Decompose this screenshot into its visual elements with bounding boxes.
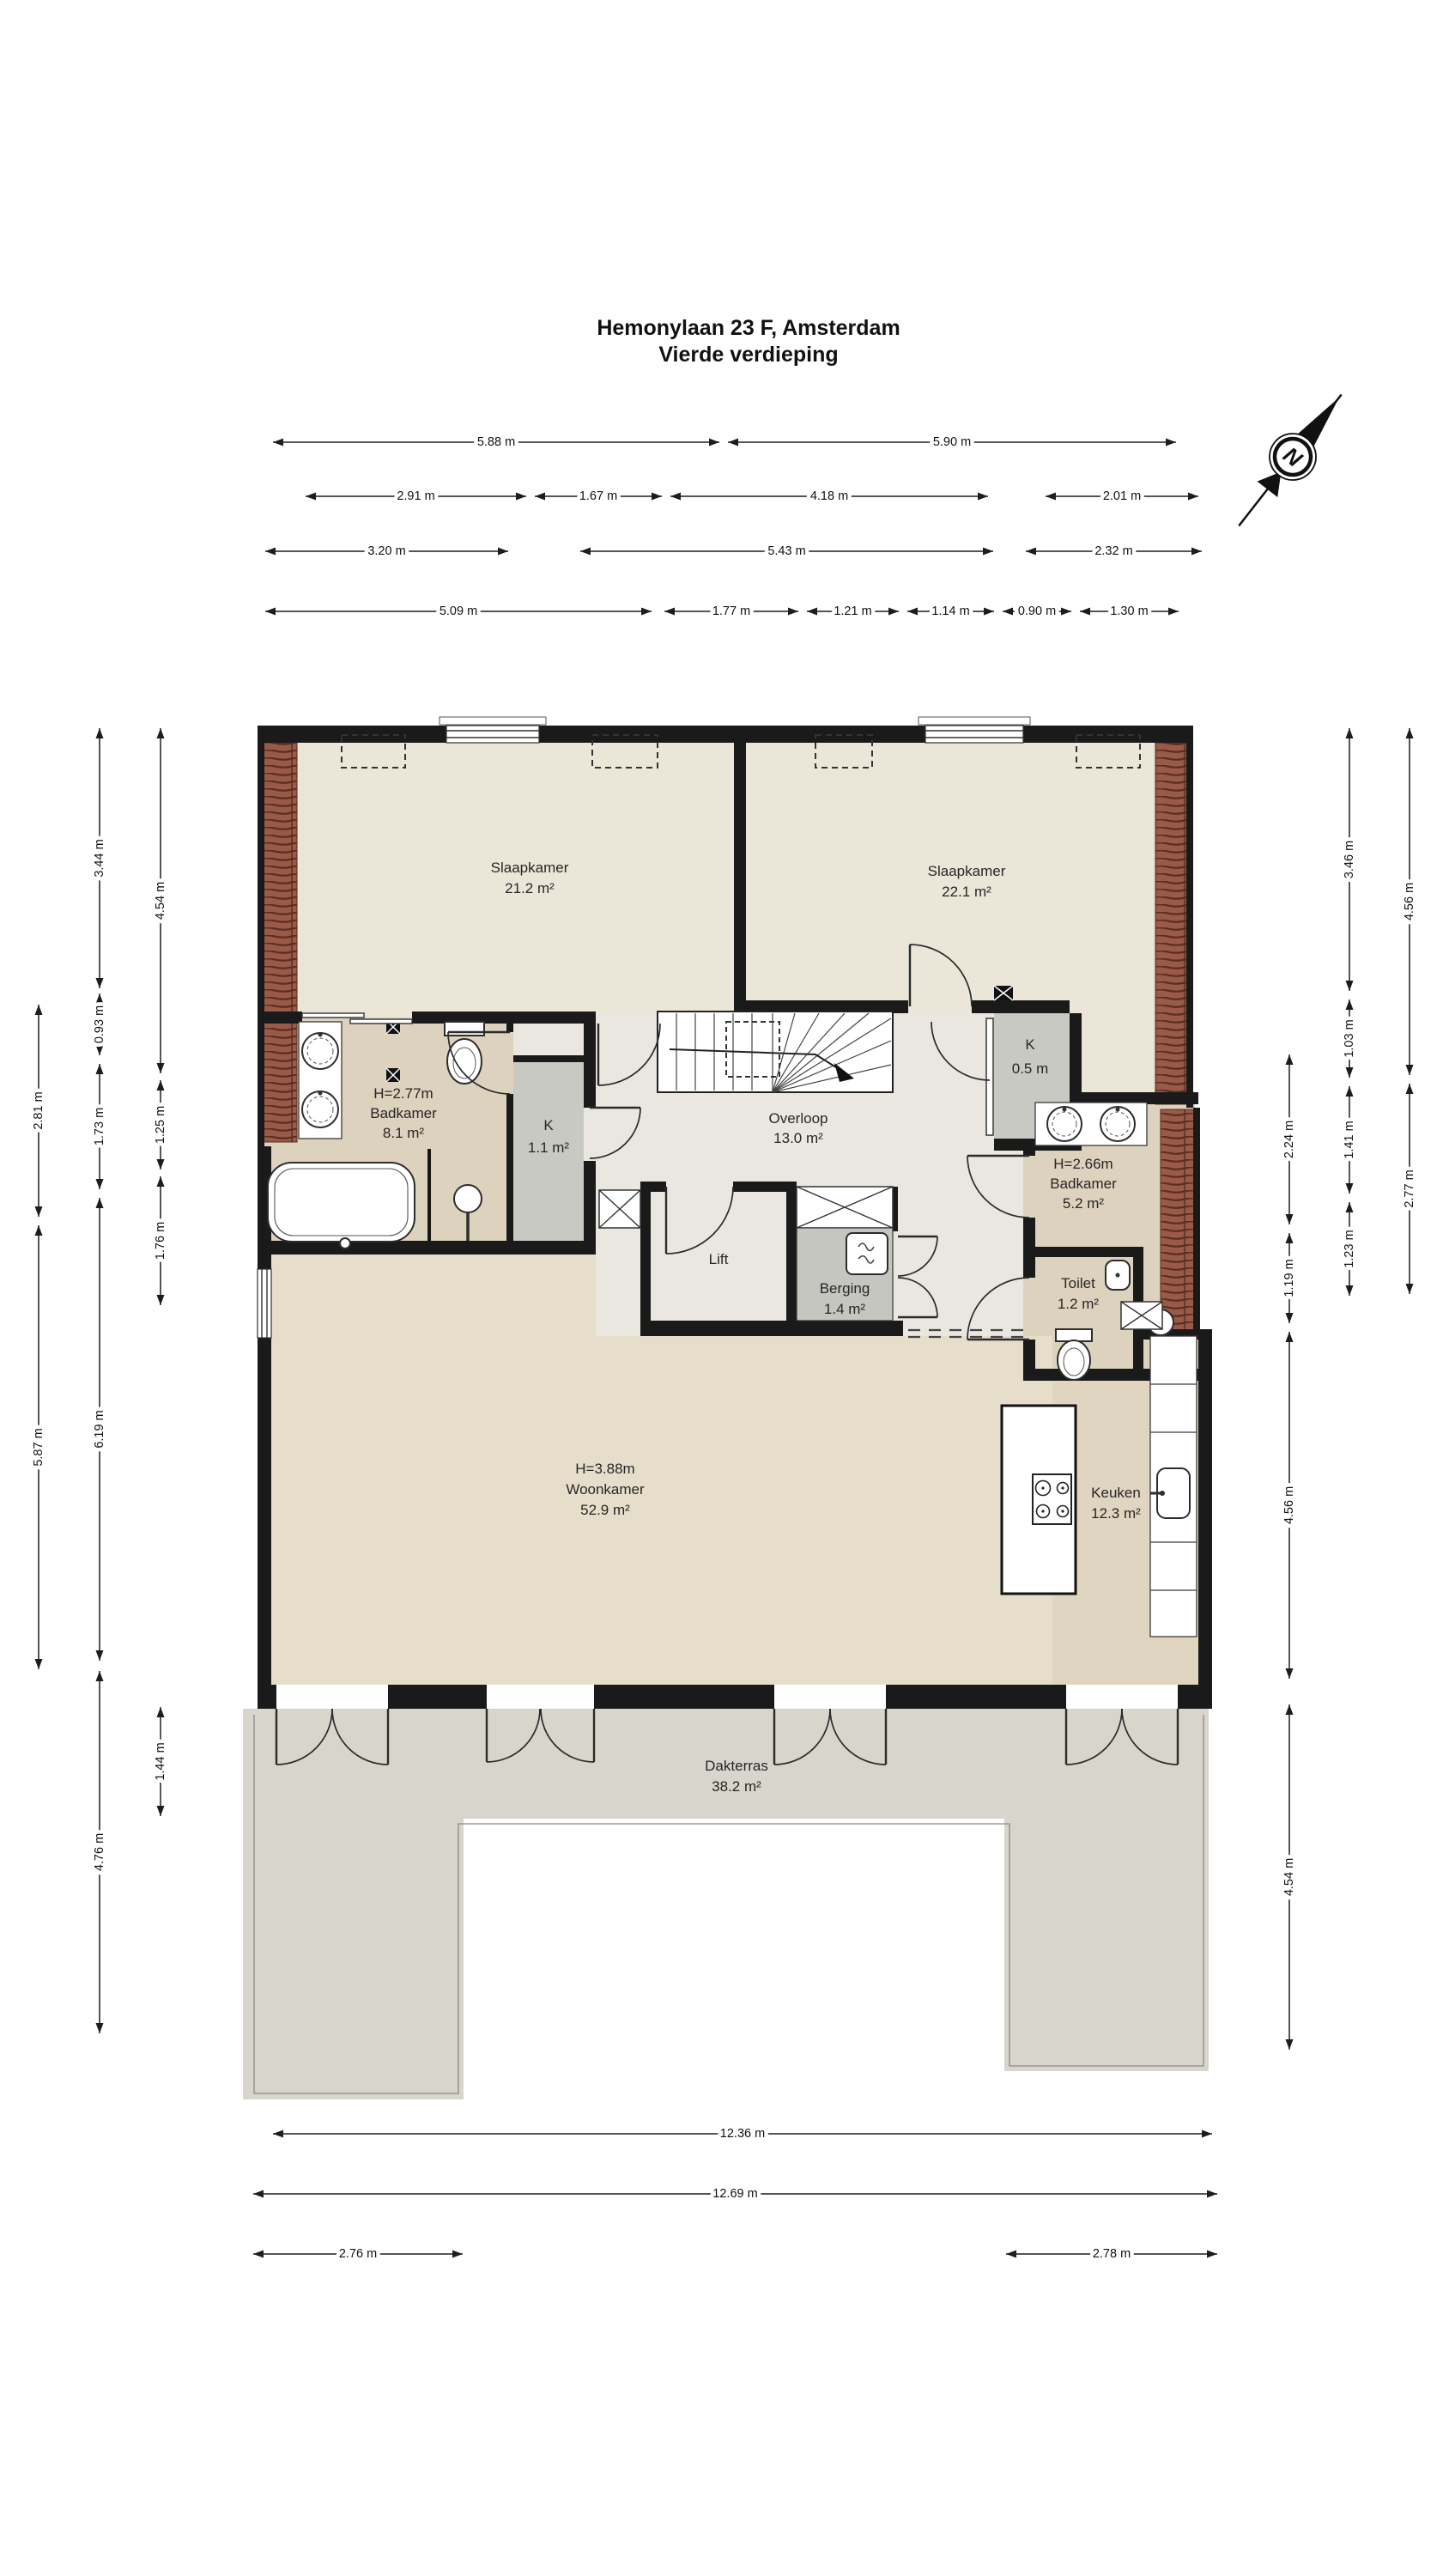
- label-keuken-area: 12.3 m²: [1091, 1505, 1141, 1522]
- roof-tiles-right-lower: [1161, 1109, 1195, 1336]
- label-lift-name: Lift: [709, 1251, 729, 1267]
- label-slaapkamer-2-area: 22.1 m²: [942, 884, 991, 900]
- dimension-label: 1.25 m: [154, 1106, 167, 1144]
- roof-tiles-left: [263, 743, 297, 1142]
- dimension-label: 1.77 m: [712, 605, 750, 618]
- label-slaapkamer-1-name: Slaapkamer: [491, 860, 569, 876]
- dimension-label: 3.46 m: [1343, 841, 1356, 878]
- dimension-label: 2.24 m: [1282, 1121, 1296, 1158]
- dimension-label: 5.88 m: [477, 435, 515, 449]
- label-toilet-area: 1.2 m²: [1058, 1296, 1100, 1312]
- label-badkamer-1-area: 8.1 m²: [383, 1125, 425, 1141]
- dimension-label: 2.78 m: [1093, 2247, 1131, 2261]
- window-top-right: [919, 717, 1030, 743]
- label-overloop-area: 13.0 m²: [773, 1130, 823, 1146]
- label-kast-1-area: 1.1 m²: [528, 1139, 570, 1156]
- label-berging-area: 1.4 m²: [824, 1301, 866, 1317]
- kitchen-counter-icon: [1150, 1336, 1197, 1637]
- label-kast-2-area: 0.5 m: [1012, 1060, 1049, 1077]
- kitchen-island-icon: [1002, 1406, 1076, 1594]
- label-berging-name: Berging: [820, 1280, 870, 1297]
- dimension-label: 1.41 m: [1343, 1121, 1356, 1158]
- dimension-label: 2.81 m: [32, 1091, 45, 1129]
- dimension-label: 1.44 m: [154, 1742, 167, 1780]
- dimension-label: 2.76 m: [339, 2247, 377, 2261]
- page-title: Hemonylaan 23 F, Amsterdam: [597, 316, 900, 340]
- label-badkamer-1-name: Badkamer: [370, 1105, 437, 1121]
- label-keuken-name: Keuken: [1091, 1485, 1141, 1501]
- label-badkamer-2-area: 5.2 m²: [1063, 1195, 1105, 1212]
- window-top-left: [440, 717, 546, 743]
- dimension-label: 4.54 m: [1282, 1858, 1296, 1896]
- dimension-label: 1.67 m: [579, 489, 617, 503]
- label-woonkamer-name: Woonkamer: [566, 1481, 645, 1498]
- floor-plan: Hemonylaan 23 F, Amsterdam Vierde verdie…: [0, 0, 1449, 2576]
- wardrobe-closet-above-berging: [797, 1187, 893, 1228]
- toilet-icon-toilet-room: [1056, 1329, 1092, 1380]
- dimension-label: 4.56 m: [1282, 1486, 1296, 1524]
- label-badkamer-2-name: Badkamer: [1050, 1176, 1117, 1192]
- dimension-label: 2.77 m: [1403, 1170, 1416, 1207]
- dimension-label: 6.19 m: [93, 1410, 106, 1448]
- label-badkamer-1-height: H=2.77m: [373, 1085, 433, 1102]
- wardrobe-closet-keuken-top: [1121, 1302, 1162, 1329]
- dimension-label: 1.14 m: [931, 605, 969, 618]
- page-subtitle: Vierde verdieping: [658, 343, 838, 367]
- dimension-label: 5.90 m: [933, 435, 971, 449]
- double-sink-counter-icon: [299, 1022, 342, 1139]
- label-kast-2-name: K: [1025, 1036, 1035, 1053]
- dimension-label: 1.03 m: [1343, 1019, 1356, 1057]
- dimension-label: 4.18 m: [810, 489, 848, 503]
- dimension-label: 1.21 m: [834, 605, 871, 618]
- dimension-label: 1.30 m: [1110, 605, 1148, 618]
- dimension-label: 3.20 m: [367, 544, 405, 558]
- label-overloop-name: Overloop: [769, 1110, 828, 1127]
- label-woonkamer-area: 52.9 m²: [580, 1502, 630, 1518]
- roof-tiles-right-upper: [1155, 743, 1190, 1104]
- dimension-label: 5.87 m: [32, 1428, 45, 1466]
- label-badkamer-2-height: H=2.66m: [1053, 1156, 1113, 1172]
- window-left-wall: [258, 1269, 271, 1338]
- staircase: [658, 1012, 893, 1092]
- room-slaapkamer-1-floor: [263, 738, 734, 1018]
- label-toilet-name: Toilet: [1061, 1275, 1095, 1291]
- dimension-label: 1.76 m: [154, 1222, 167, 1260]
- label-kast-1-name: K: [543, 1117, 554, 1133]
- dimension-label: 1.23 m: [1343, 1230, 1356, 1267]
- dimension-label: 1.19 m: [1282, 1259, 1296, 1297]
- dimension-label: 0.90 m: [1018, 605, 1056, 618]
- bathtub-icon: [268, 1163, 415, 1249]
- label-dakterras-name: Dakterras: [705, 1758, 768, 1774]
- corner-sink-icon-toilet: [1106, 1261, 1130, 1290]
- cooktop-icon: [1033, 1474, 1071, 1524]
- dimension-label: 2.01 m: [1103, 489, 1141, 503]
- dimension-label: 4.56 m: [1403, 883, 1416, 920]
- dimension-label: 12.36 m: [720, 2127, 765, 2141]
- dimension-label: 12.69 m: [712, 2187, 757, 2201]
- label-slaapkamer-2-name: Slaapkamer: [928, 863, 1006, 879]
- dimension-label: 2.91 m: [397, 489, 434, 503]
- label-woonkamer-height: H=3.88m: [575, 1461, 634, 1477]
- dimension-label: 1.73 m: [93, 1108, 106, 1145]
- label-dakterras-area: 38.2 m²: [712, 1778, 761, 1795]
- boiler-icon-berging: [846, 1233, 888, 1274]
- dimension-label: 3.44 m: [93, 839, 106, 877]
- dimension-label: 4.54 m: [154, 882, 167, 920]
- label-slaapkamer-1-area: 21.2 m²: [505, 880, 555, 896]
- dimension-label: 0.93 m: [93, 1005, 106, 1043]
- dimension-label: 2.32 m: [1094, 544, 1132, 558]
- dimension-label: 5.09 m: [440, 605, 477, 618]
- wardrobe-closet-left-of-lift: [599, 1190, 640, 1228]
- floor-plan-page: Hemonylaan 23 F, Amsterdam Vierde verdie…: [0, 0, 1449, 2576]
- double-sink-counter-icon-badkamer-2: [1035, 1103, 1147, 1145]
- dimension-label: 4.76 m: [93, 1833, 106, 1871]
- dimension-label: 5.43 m: [767, 544, 805, 558]
